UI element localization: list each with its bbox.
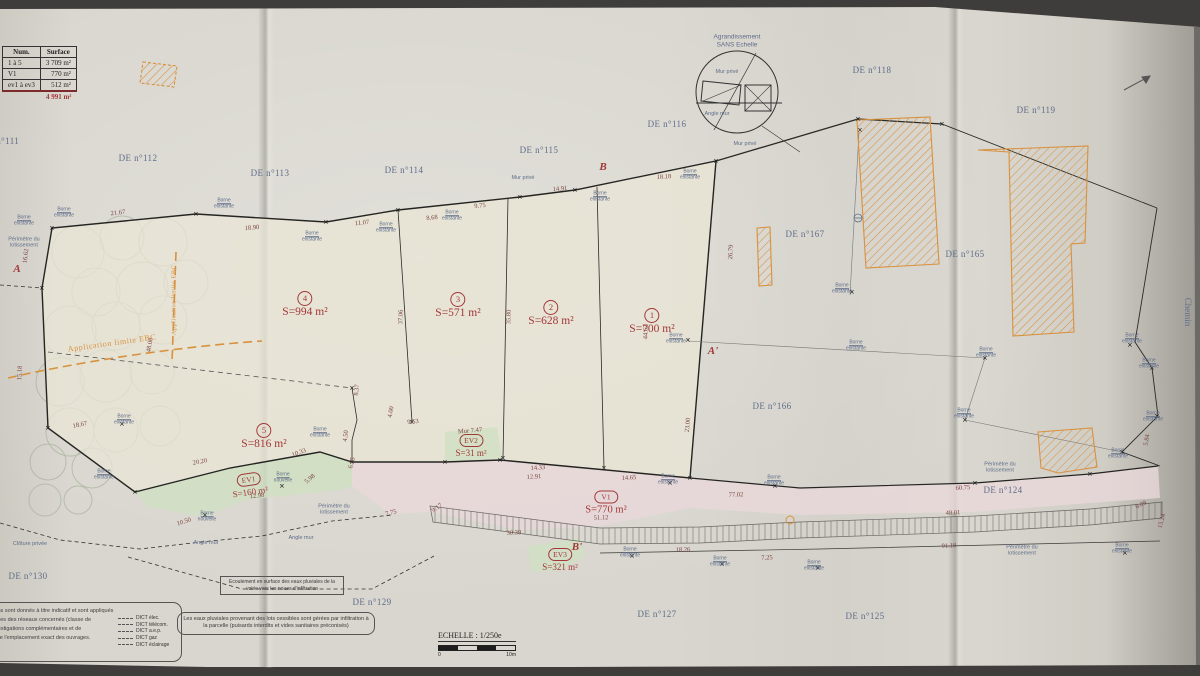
note-rainwater-box: Les eaux pluviales provenant des lots ce… <box>177 612 375 635</box>
scale-start: 0 <box>438 652 441 658</box>
photo-of-site-plan: ××××××××××××××××××××××××××××××××××××××××… <box>0 0 1200 676</box>
dict-legend-item: DICT télécom. <box>118 622 169 629</box>
scale-end: 10m <box>506 652 516 658</box>
surface-summary-table: Num. Surface 1 à 53 709 m²V1770 m²ev1 à … <box>2 46 77 102</box>
table-header-surface: Surface <box>40 47 76 58</box>
dict-legend: DICT élec.DICT télécom.DICT a.e.p.DICT g… <box>118 615 169 648</box>
table-row: 1 à 53 709 m² <box>3 58 77 69</box>
note-flow-box: Ecoulement en surface des eaux pluviales… <box>220 576 344 595</box>
table-row: ev1 à ev3512 m² <box>3 80 77 92</box>
dict-legend-item: DICT a.e.p. <box>118 628 169 635</box>
dict-legend-item: DICT élec. <box>118 615 169 622</box>
paper-sheet <box>0 7 1200 667</box>
table-row: V1770 m² <box>3 69 77 80</box>
scale-label: ECHELLE : 1/250e <box>438 631 516 642</box>
scale-bar <box>438 645 516 651</box>
scale-block: ECHELLE : 1/250e 0 10m <box>438 631 516 658</box>
table-total: 4 991 m² <box>40 91 76 102</box>
detail-circle-caption: AgrandissementSANS Echelle <box>714 34 761 51</box>
table-header-num: Num. <box>3 47 41 58</box>
dict-legend-item: DICT éclairage <box>118 641 169 648</box>
dict-legend-item: DICT gaz <box>118 635 169 642</box>
